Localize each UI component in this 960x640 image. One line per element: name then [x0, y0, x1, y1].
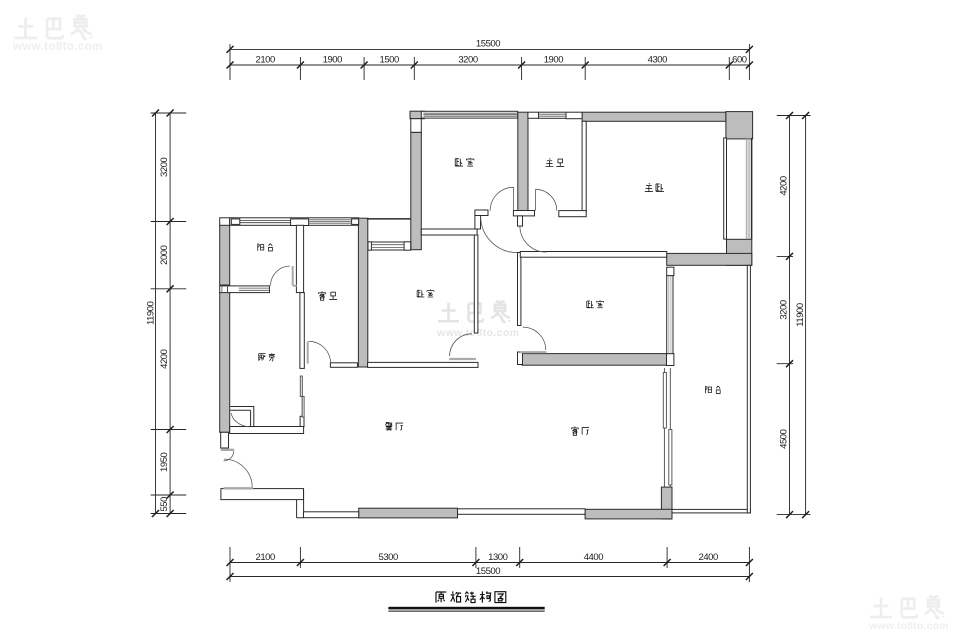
- svg-text:1900: 1900: [544, 55, 564, 66]
- svg-text:15500: 15500: [476, 39, 500, 50]
- svg-text:600: 600: [732, 55, 747, 66]
- svg-text:1950: 1950: [159, 452, 170, 472]
- svg-text:1900: 1900: [323, 55, 343, 66]
- svg-text:1300: 1300: [488, 552, 508, 563]
- svg-text:11900: 11900: [795, 303, 806, 327]
- svg-text:3200: 3200: [159, 157, 170, 177]
- svg-text:3200: 3200: [779, 300, 790, 320]
- svg-text:www.to8to.com: www.to8to.com: [868, 620, 949, 632]
- svg-text:15500: 15500: [476, 566, 500, 577]
- svg-text:3200: 3200: [458, 55, 478, 66]
- svg-text:550: 550: [159, 497, 170, 512]
- svg-text:11900: 11900: [146, 301, 157, 325]
- svg-text:5300: 5300: [379, 552, 399, 563]
- svg-text:2100: 2100: [256, 55, 276, 66]
- svg-text:www.to8to.com: www.to8to.com: [12, 41, 103, 53]
- svg-text:4300: 4300: [648, 55, 668, 66]
- svg-text:2100: 2100: [256, 552, 276, 563]
- svg-text:2400: 2400: [699, 552, 719, 563]
- svg-text:4400: 4400: [584, 552, 604, 563]
- svg-text:4500: 4500: [779, 429, 790, 449]
- svg-text:1500: 1500: [380, 55, 400, 66]
- svg-text:2000: 2000: [159, 245, 170, 265]
- svg-text:4200: 4200: [159, 349, 170, 369]
- svg-text:4200: 4200: [779, 176, 790, 196]
